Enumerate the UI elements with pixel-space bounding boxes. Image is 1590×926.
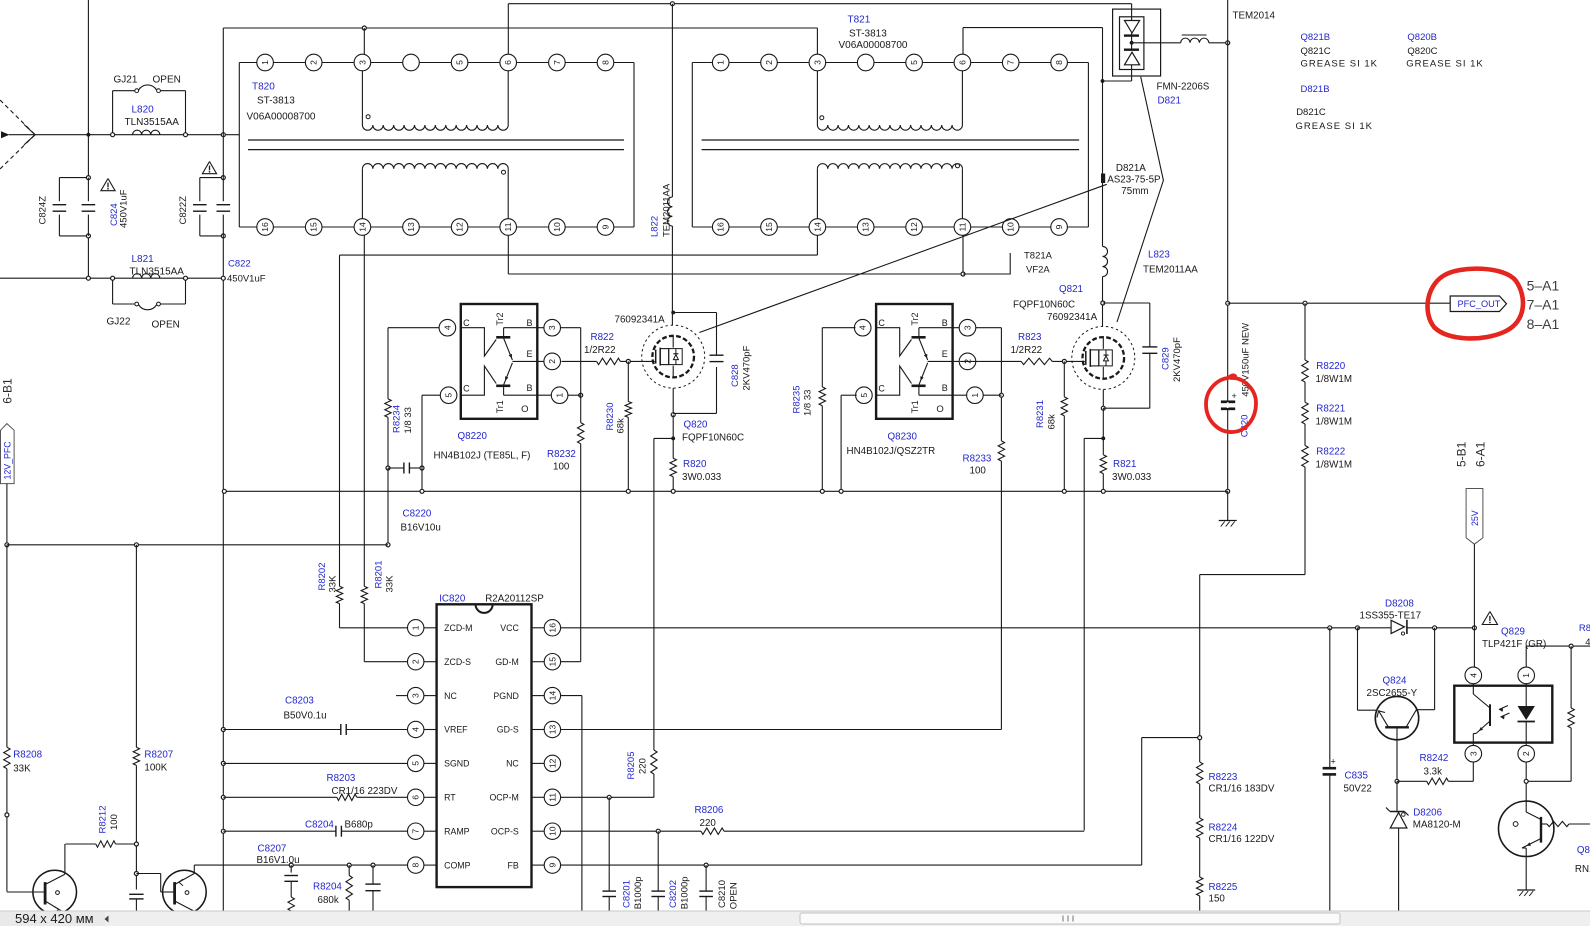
svg-text:5-B1: 5-B1 xyxy=(1455,441,1469,467)
svg-text:GREASE SI 1K: GREASE SI 1K xyxy=(1301,59,1378,70)
svg-text:1/2R22: 1/2R22 xyxy=(1011,345,1043,356)
svg-text:C8202: C8202 xyxy=(668,880,679,908)
svg-text:O: O xyxy=(521,404,528,415)
svg-text:1: 1 xyxy=(260,60,270,65)
svg-text:B: B xyxy=(527,318,533,328)
svg-text:100: 100 xyxy=(970,466,987,477)
svg-text:B680p: B680p xyxy=(345,820,374,831)
svg-text:C: C xyxy=(463,318,470,328)
svg-text:3: 3 xyxy=(411,693,421,698)
svg-text:R8222: R8222 xyxy=(1316,447,1345,458)
svg-text:6: 6 xyxy=(503,60,513,65)
svg-text:T821: T821 xyxy=(848,15,871,26)
svg-text:ST-3813: ST-3813 xyxy=(257,96,295,107)
svg-text:Q820B: Q820B xyxy=(1407,32,1437,43)
svg-text:Q824: Q824 xyxy=(1383,676,1408,687)
svg-text:2: 2 xyxy=(1521,751,1531,756)
svg-text:MA8120-M: MA8120-M xyxy=(1413,820,1461,831)
svg-text:T820: T820 xyxy=(252,82,275,93)
svg-text:12: 12 xyxy=(909,222,919,232)
svg-text:9: 9 xyxy=(601,224,611,229)
svg-text:TLN3515AA: TLN3515AA xyxy=(130,267,185,278)
svg-text:Tr2: Tr2 xyxy=(495,312,505,325)
svg-text:4: 4 xyxy=(442,325,452,330)
svg-text:76092341A: 76092341A xyxy=(615,314,666,325)
svg-text:33K: 33K xyxy=(328,575,339,593)
svg-text:50V22: 50V22 xyxy=(1344,784,1372,795)
svg-text:Tr1: Tr1 xyxy=(910,400,920,413)
svg-text:NC: NC xyxy=(444,691,457,701)
svg-text:12V_PFC: 12V_PFC xyxy=(3,441,13,480)
svg-text:OPEN: OPEN xyxy=(153,74,181,85)
svg-text:C829: C829 xyxy=(1161,347,1172,370)
svg-text:R8207: R8207 xyxy=(144,750,173,761)
svg-text:3: 3 xyxy=(812,60,822,65)
svg-text:100: 100 xyxy=(553,462,570,473)
svg-text:Q829: Q829 xyxy=(1501,627,1525,638)
svg-text:L821: L821 xyxy=(132,254,155,265)
svg-text:FQPF10N60C: FQPF10N60C xyxy=(1013,300,1075,311)
svg-text:76092341A: 76092341A xyxy=(1047,312,1098,323)
svg-text:E: E xyxy=(942,349,948,359)
svg-text:D8208: D8208 xyxy=(1385,599,1414,610)
svg-text:V06A00008700: V06A00008700 xyxy=(839,40,908,51)
svg-text:5: 5 xyxy=(909,60,919,65)
svg-text:R8201: R8201 xyxy=(374,561,385,589)
svg-text:Q820: Q820 xyxy=(684,420,709,431)
svg-text:Q82: Q82 xyxy=(1577,845,1590,856)
svg-text:5: 5 xyxy=(455,60,465,65)
svg-text:B1000p: B1000p xyxy=(633,876,644,909)
svg-text:2: 2 xyxy=(547,359,557,364)
svg-text:10: 10 xyxy=(1006,222,1016,232)
svg-text:15: 15 xyxy=(547,657,557,667)
svg-text:R8220: R8220 xyxy=(1316,361,1345,372)
svg-text:R821: R821 xyxy=(1113,459,1136,470)
svg-text:OCP-S: OCP-S xyxy=(491,826,519,836)
svg-text:L822: L822 xyxy=(650,216,661,237)
svg-text:7–A1: 7–A1 xyxy=(1527,297,1560,313)
svg-text:R8205: R8205 xyxy=(626,752,637,780)
svg-text:V06A00008700: V06A00008700 xyxy=(247,112,316,123)
svg-text:HN4B102J/QSZ2TR: HN4B102J/QSZ2TR xyxy=(847,446,936,457)
svg-text:PGND: PGND xyxy=(493,691,518,701)
svg-text:CR1/16 122DV: CR1/16 122DV xyxy=(1209,834,1275,845)
svg-text:D821B: D821B xyxy=(1301,84,1330,95)
svg-text:R8204: R8204 xyxy=(313,882,342,893)
svg-text:10: 10 xyxy=(552,222,562,232)
svg-text:1/8 33: 1/8 33 xyxy=(803,390,814,416)
svg-text:Q820C: Q820C xyxy=(1407,46,1437,57)
svg-text:594 x 420 мм: 594 x 420 мм xyxy=(15,911,94,926)
svg-text:R823: R823 xyxy=(1018,332,1042,343)
svg-text:C: C xyxy=(463,383,470,393)
svg-text:6-B1: 6-B1 xyxy=(1,378,15,404)
svg-text:3: 3 xyxy=(357,60,367,65)
svg-text:7: 7 xyxy=(411,829,421,834)
svg-text:3: 3 xyxy=(1468,751,1478,756)
svg-text:TEM2014: TEM2014 xyxy=(1233,10,1276,21)
svg-text:ZCD-S: ZCD-S xyxy=(444,657,471,667)
svg-text:B16V10u: B16V10u xyxy=(401,523,441,534)
svg-text:R8235: R8235 xyxy=(792,386,803,414)
svg-text:O: O xyxy=(936,404,943,415)
svg-text:C835: C835 xyxy=(1345,771,1369,782)
svg-text:68k: 68k xyxy=(616,418,627,434)
svg-text:220: 220 xyxy=(638,758,649,774)
svg-text:D821A: D821A xyxy=(1116,163,1146,174)
svg-text:AS23-75-5P: AS23-75-5P xyxy=(1107,175,1161,186)
svg-text:2SC2655-Y: 2SC2655-Y xyxy=(1367,688,1418,699)
svg-text:R822: R822 xyxy=(591,332,614,343)
svg-text:TEM2011AA: TEM2011AA xyxy=(662,183,673,237)
svg-text:12: 12 xyxy=(547,758,557,768)
svg-text:1/8W1M: 1/8W1M xyxy=(1316,460,1352,471)
svg-text:VF2A: VF2A xyxy=(1026,265,1050,276)
svg-text:8: 8 xyxy=(1054,60,1064,65)
svg-text:D821: D821 xyxy=(1158,96,1181,107)
svg-text:7: 7 xyxy=(1006,60,1016,65)
svg-text:1/8W1M: 1/8W1M xyxy=(1316,417,1352,428)
svg-text:1SS355-TE17: 1SS355-TE17 xyxy=(1360,611,1422,622)
svg-text:5: 5 xyxy=(859,393,869,398)
svg-text:Tr2: Tr2 xyxy=(910,312,920,325)
svg-text:Tr1: Tr1 xyxy=(495,400,505,413)
svg-text:FQPF10N60C: FQPF10N60C xyxy=(682,433,744,444)
svg-text:220: 220 xyxy=(700,818,717,829)
svg-text:TLP421F (GR): TLP421F (GR) xyxy=(1482,639,1546,650)
svg-text:OPEN: OPEN xyxy=(729,882,740,909)
svg-text:B50V0.1u: B50V0.1u xyxy=(284,711,327,722)
svg-text:1: 1 xyxy=(411,625,421,630)
svg-text:33K: 33K xyxy=(13,764,31,775)
svg-text:L820: L820 xyxy=(132,105,155,116)
svg-text:2: 2 xyxy=(309,60,319,65)
svg-text:5: 5 xyxy=(444,393,454,398)
svg-text:150: 150 xyxy=(1209,894,1226,905)
svg-text:2: 2 xyxy=(764,60,774,65)
svg-text:1/8 33: 1/8 33 xyxy=(403,407,414,433)
svg-text:4: 4 xyxy=(411,727,421,732)
svg-text:3W0.033: 3W0.033 xyxy=(682,472,722,483)
svg-text:T821A: T821A xyxy=(1024,251,1053,262)
svg-text:TEM2011AA: TEM2011AA xyxy=(1143,265,1198,276)
svg-text:680k: 680k xyxy=(318,895,339,906)
svg-text:R8233: R8233 xyxy=(963,454,992,465)
svg-text:R820: R820 xyxy=(683,459,707,470)
svg-text:1: 1 xyxy=(970,393,980,398)
svg-text:R8202: R8202 xyxy=(317,563,328,591)
svg-text:C8203: C8203 xyxy=(285,696,314,707)
svg-text:R8225: R8225 xyxy=(1209,882,1238,893)
svg-text:3.3k: 3.3k xyxy=(1424,766,1443,777)
svg-text:2KV470pF: 2KV470pF xyxy=(1172,337,1183,382)
svg-text:R8203: R8203 xyxy=(327,773,356,784)
svg-text:C828: C828 xyxy=(730,364,741,387)
svg-text:3W0.033: 3W0.033 xyxy=(1112,472,1152,483)
svg-text:5–A1: 5–A1 xyxy=(1527,278,1560,294)
svg-text:2KV470pF: 2KV470pF xyxy=(742,345,753,390)
svg-text:C8210: C8210 xyxy=(717,880,728,908)
svg-text:5: 5 xyxy=(411,761,421,766)
svg-text:1: 1 xyxy=(555,393,565,398)
svg-text:4: 4 xyxy=(1468,673,1478,678)
svg-text:PFC_OUT: PFC_OUT xyxy=(1458,299,1501,309)
svg-text:C8204: C8204 xyxy=(305,820,334,831)
svg-text:16: 16 xyxy=(260,222,270,232)
svg-text:10: 10 xyxy=(547,826,557,836)
svg-text:16: 16 xyxy=(716,222,726,232)
svg-text:1/8W1M: 1/8W1M xyxy=(1316,374,1352,385)
svg-text:R8221: R8221 xyxy=(1316,404,1345,415)
svg-text:R8230: R8230 xyxy=(605,403,616,431)
svg-text:75mm: 75mm xyxy=(1121,186,1148,197)
svg-text:Q821B: Q821B xyxy=(1301,32,1331,43)
svg-text:Q821: Q821 xyxy=(1059,284,1083,295)
svg-text:C822: C822 xyxy=(228,259,251,270)
svg-text:C824Z: C824Z xyxy=(38,196,49,225)
svg-text:SGND: SGND xyxy=(444,759,469,769)
svg-text:1: 1 xyxy=(716,60,726,65)
svg-text:68k: 68k xyxy=(1047,414,1058,430)
svg-text:VREF: VREF xyxy=(444,725,468,735)
svg-text:B: B xyxy=(942,383,948,393)
svg-text:2: 2 xyxy=(411,659,421,664)
svg-text:3: 3 xyxy=(963,325,973,330)
svg-text:R8224: R8224 xyxy=(1209,823,1238,834)
svg-text:11: 11 xyxy=(547,793,557,802)
svg-text:1: 1 xyxy=(1521,673,1531,678)
svg-text:14: 14 xyxy=(357,222,367,232)
svg-text:OCP-M: OCP-M xyxy=(489,793,518,803)
svg-text:IC820: IC820 xyxy=(439,593,466,604)
svg-text:3: 3 xyxy=(547,325,557,330)
svg-text:R8206: R8206 xyxy=(695,805,724,816)
svg-text:VCC: VCC xyxy=(500,623,519,633)
svg-text:C: C xyxy=(878,318,885,328)
svg-text:RAMP: RAMP xyxy=(444,826,470,836)
svg-text:12: 12 xyxy=(455,222,465,232)
svg-text:4: 4 xyxy=(858,325,868,330)
svg-text:C8207: C8207 xyxy=(258,844,287,855)
svg-text:100: 100 xyxy=(109,814,120,830)
svg-text:6: 6 xyxy=(411,795,421,800)
svg-text:8: 8 xyxy=(411,862,421,867)
svg-text:Q8230: Q8230 xyxy=(888,431,918,442)
svg-text:RT: RT xyxy=(444,793,456,803)
svg-text:11: 11 xyxy=(503,222,513,231)
svg-text:8: 8 xyxy=(601,60,611,65)
svg-text:R8232: R8232 xyxy=(547,449,576,460)
svg-text:9: 9 xyxy=(1054,224,1064,229)
svg-text:D821C: D821C xyxy=(1296,107,1326,118)
svg-text:13: 13 xyxy=(861,222,871,232)
svg-text:15: 15 xyxy=(764,222,774,232)
svg-text:13: 13 xyxy=(547,725,557,735)
svg-text:B16V1.0u: B16V1.0u xyxy=(257,855,300,866)
svg-text:GD-M: GD-M xyxy=(495,657,518,667)
svg-text:4: 4 xyxy=(1585,637,1590,648)
svg-text:Q821C: Q821C xyxy=(1301,46,1331,57)
svg-text:FB: FB xyxy=(508,860,519,870)
svg-text:11: 11 xyxy=(957,222,967,231)
svg-text:NC: NC xyxy=(506,759,519,769)
svg-text:R8: R8 xyxy=(1579,623,1590,634)
svg-text:C: C xyxy=(878,383,885,393)
svg-text:GREASE SI 1K: GREASE SI 1K xyxy=(1406,59,1483,70)
svg-text:R2A20112SP: R2A20112SP xyxy=(485,593,544,604)
svg-text:RN1: RN1 xyxy=(1575,864,1590,875)
svg-text:GJ21: GJ21 xyxy=(114,74,138,85)
svg-text:B: B xyxy=(527,383,533,393)
svg-text:TLN3515AA: TLN3515AA xyxy=(125,117,180,128)
svg-text:GREASE SI 1K: GREASE SI 1K xyxy=(1296,121,1373,132)
svg-text:CR1/16 183DV: CR1/16 183DV xyxy=(1209,784,1275,795)
svg-text:9: 9 xyxy=(547,862,557,867)
svg-text:GD-S: GD-S xyxy=(497,725,519,735)
svg-text:7: 7 xyxy=(552,60,562,65)
svg-text:6-A1: 6-A1 xyxy=(1474,441,1488,467)
svg-text:25V: 25V xyxy=(1470,510,1480,526)
svg-text:+: + xyxy=(1331,757,1336,767)
svg-text:HN4B102J (TE85L, F): HN4B102J (TE85L, F) xyxy=(434,451,531,462)
svg-text:ZCD-M: ZCD-M xyxy=(444,623,472,633)
svg-text:1/2R22: 1/2R22 xyxy=(584,345,616,356)
svg-text:L823: L823 xyxy=(1148,250,1170,261)
svg-text:450V1uF: 450V1uF xyxy=(227,274,266,285)
svg-text:14: 14 xyxy=(547,691,557,701)
svg-text:+: + xyxy=(1232,391,1237,401)
svg-text:D8206: D8206 xyxy=(1413,808,1442,819)
svg-text:R8231: R8231 xyxy=(1035,400,1046,428)
svg-text:C8220: C8220 xyxy=(403,509,432,520)
svg-text:13: 13 xyxy=(406,222,416,232)
svg-text:R8223: R8223 xyxy=(1209,772,1238,783)
svg-text:R8242: R8242 xyxy=(1420,753,1449,764)
svg-text:15: 15 xyxy=(309,222,319,232)
svg-text:100K: 100K xyxy=(144,763,167,774)
svg-text:14: 14 xyxy=(812,222,822,232)
svg-text:R8208: R8208 xyxy=(13,750,42,761)
svg-text:B1000p: B1000p xyxy=(680,876,691,909)
svg-text:ST-3813: ST-3813 xyxy=(849,29,887,40)
svg-text:CR1/16 223DV: CR1/16 223DV xyxy=(332,786,398,797)
svg-text:33K: 33K xyxy=(385,575,396,593)
svg-text:GJ22: GJ22 xyxy=(107,317,131,328)
svg-text:6: 6 xyxy=(957,60,967,65)
svg-text:E: E xyxy=(527,349,533,359)
svg-text:OPEN: OPEN xyxy=(152,320,180,331)
svg-text:C822Z: C822Z xyxy=(178,196,189,225)
svg-text:C8201: C8201 xyxy=(622,880,633,908)
svg-text:450V1uF: 450V1uF xyxy=(119,189,130,228)
svg-text:8–A1: 8–A1 xyxy=(1527,316,1560,332)
svg-text:B: B xyxy=(942,318,948,328)
svg-text:FMN-2206S: FMN-2206S xyxy=(1157,82,1210,93)
svg-text:Q8220: Q8220 xyxy=(458,431,488,442)
svg-text:COMP: COMP xyxy=(444,860,471,870)
svg-text:R8212: R8212 xyxy=(98,806,109,834)
svg-text:R8234: R8234 xyxy=(392,405,403,433)
svg-text:16: 16 xyxy=(547,623,557,633)
